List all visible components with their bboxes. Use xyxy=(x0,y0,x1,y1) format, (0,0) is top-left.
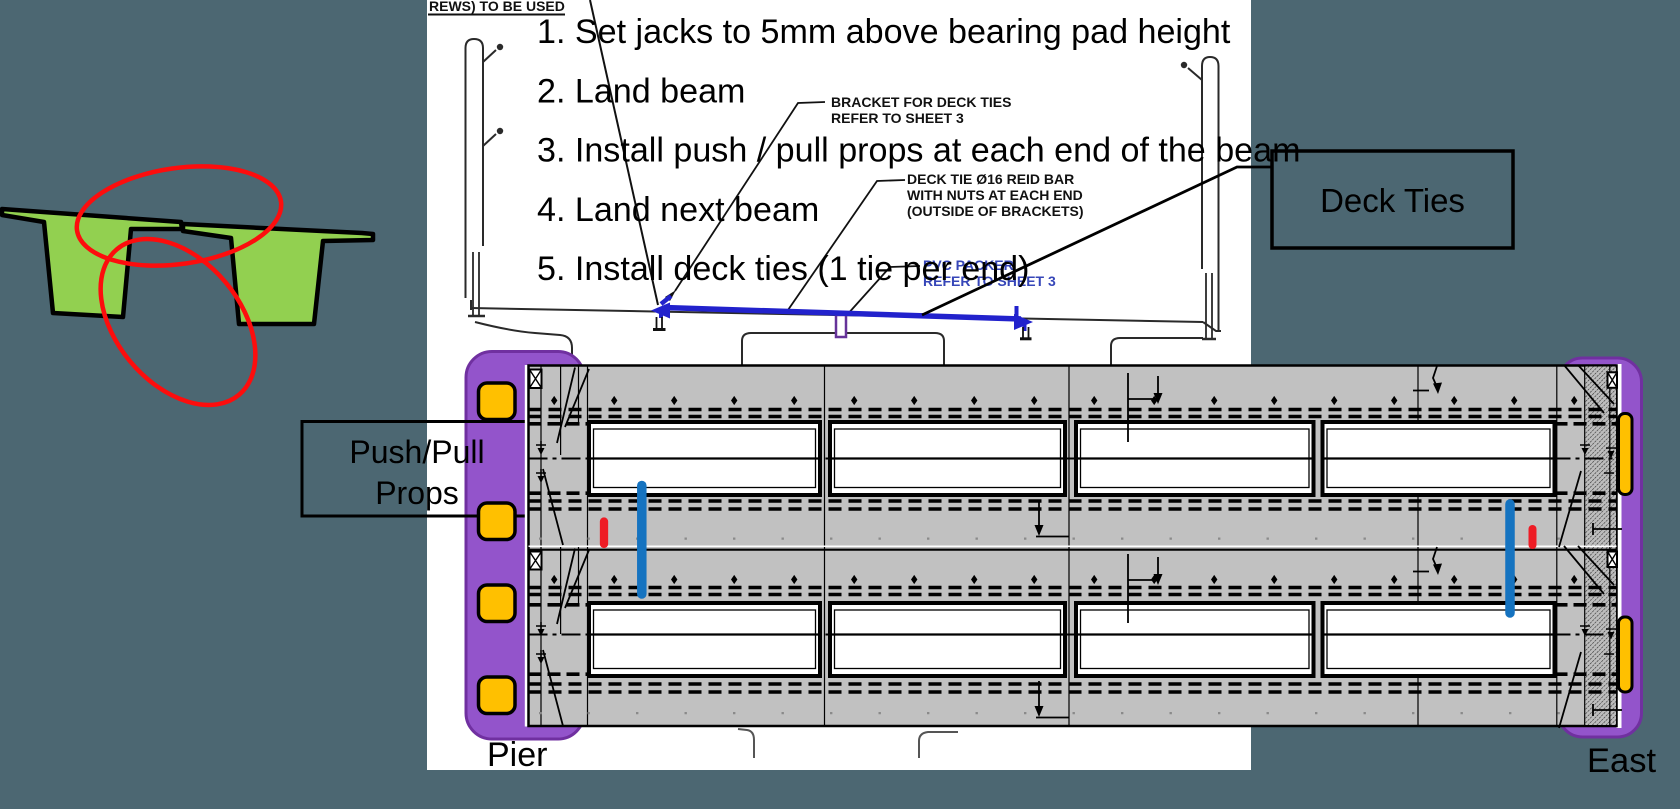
svg-text:Props: Props xyxy=(375,475,459,511)
svg-text:REFER TO SHEET 3: REFER TO SHEET 3 xyxy=(831,110,964,126)
svg-text:4. Land next beam: 4. Land next beam xyxy=(537,191,819,229)
svg-text:Push/Pull: Push/Pull xyxy=(349,434,484,470)
svg-text:Deck Ties: Deck Ties xyxy=(1320,182,1465,219)
svg-text:2. Land beam: 2. Land beam xyxy=(537,73,745,111)
svg-text:East: East xyxy=(1587,742,1656,780)
svg-text:5. Install deck ties (1 tie pe: 5. Install deck ties (1 tie per end) xyxy=(537,250,1030,288)
svg-text:3. Install push / pull props a: 3. Install push / pull props at each end… xyxy=(537,132,1300,170)
svg-text:1. Set jacks to 5mm above bear: 1. Set jacks to 5mm above bearing pad he… xyxy=(537,13,1231,51)
svg-text:Pier: Pier xyxy=(487,736,547,774)
svg-text:BRACKET FOR DECK TIES: BRACKET FOR DECK TIES xyxy=(831,94,1011,110)
svg-text:DECK TIE Ø16 REID BAR: DECK TIE Ø16 REID BAR xyxy=(907,171,1074,187)
svg-text:WITH NUTS AT EACH END: WITH NUTS AT EACH END xyxy=(907,187,1083,203)
svg-text:REWS) TO BE USED: REWS) TO BE USED xyxy=(429,0,565,14)
svg-text:(OUTSIDE OF BRACKETS): (OUTSIDE OF BRACKETS) xyxy=(907,203,1084,219)
